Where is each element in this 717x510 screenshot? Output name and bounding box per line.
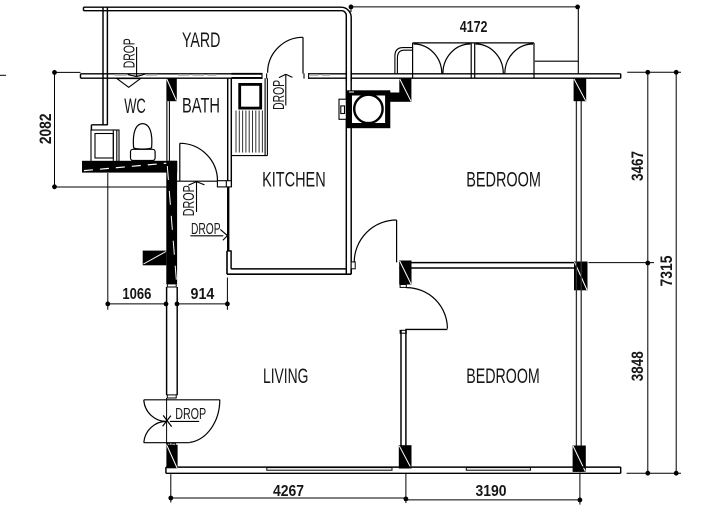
svg-text:3190: 3190 [476,483,507,500]
svg-text:BEDROOM: BEDROOM [466,169,541,192]
svg-text:YARD: YARD [182,29,221,52]
svg-text:LIVING: LIVING [263,365,308,388]
svg-text:BATH: BATH [182,95,220,118]
svg-text:DROP: DROP [175,406,206,423]
svg-text:KITCHEN: KITCHEN [262,169,326,192]
svg-text:WC: WC [124,95,146,118]
svg-text:4267: 4267 [273,483,304,500]
svg-text:4172: 4172 [460,19,488,36]
svg-text:7315: 7315 [658,256,676,287]
svg-text:3848: 3848 [629,351,647,381]
svg-text:1066: 1066 [122,286,151,303]
svg-text:DROP: DROP [191,221,221,238]
svg-text:DROP: DROP [122,38,139,68]
svg-text:BEDROOM: BEDROOM [466,365,540,388]
svg-text:2082: 2082 [37,114,55,145]
svg-text:3467: 3467 [629,151,647,181]
svg-text:914: 914 [191,286,215,303]
svg-text:DROP: DROP [181,185,198,216]
svg-text:DROP: DROP [271,80,288,110]
